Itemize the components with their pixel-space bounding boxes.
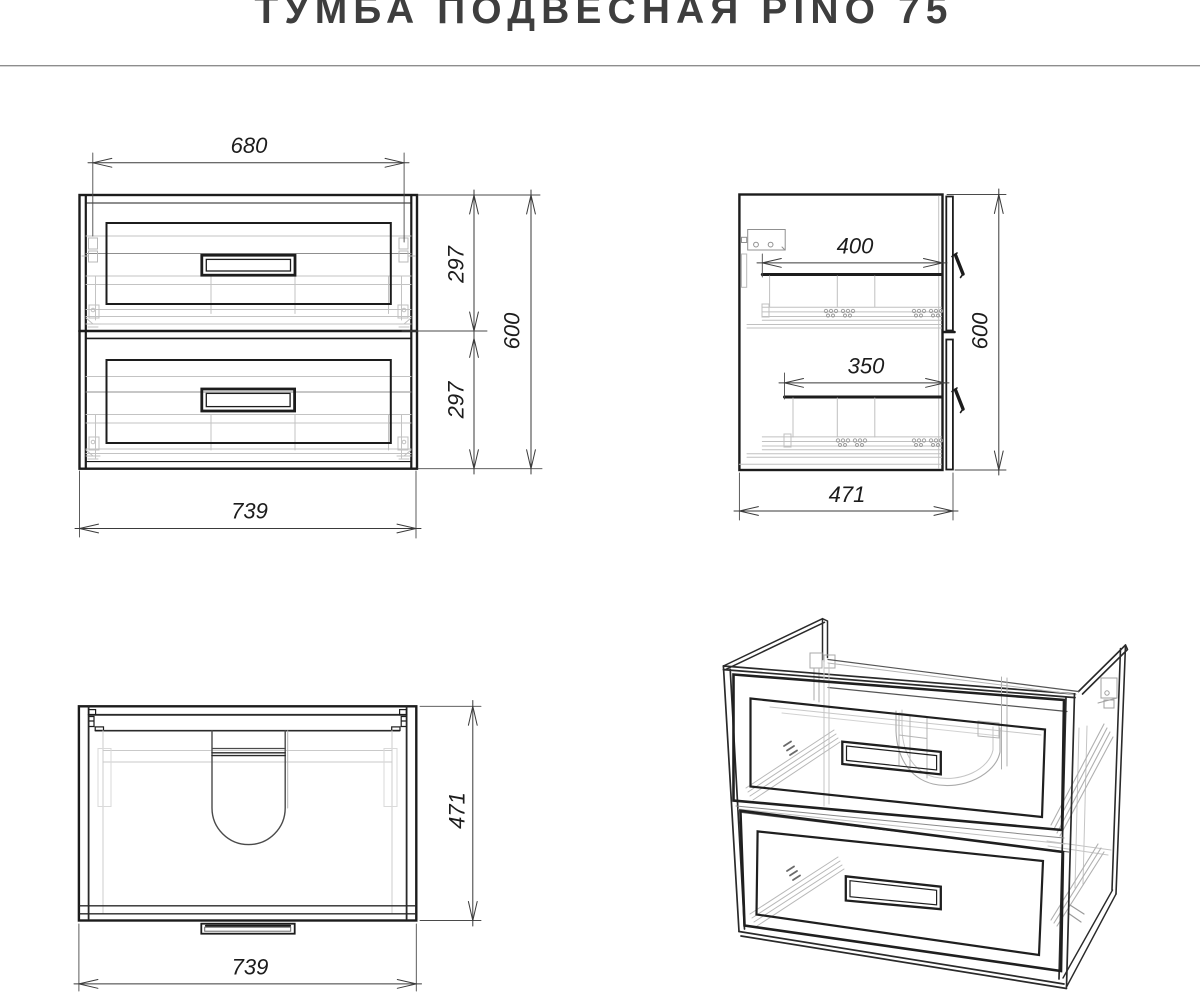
- svg-text:680: 680: [231, 133, 268, 158]
- svg-text:600: 600: [968, 312, 993, 349]
- svg-text:600: 600: [500, 312, 525, 349]
- svg-text:297: 297: [444, 381, 469, 419]
- svg-text:471: 471: [445, 792, 470, 829]
- svg-text:739: 739: [232, 955, 269, 980]
- svg-text:739: 739: [231, 499, 268, 524]
- svg-text:350: 350: [848, 354, 885, 379]
- svg-text:400: 400: [837, 234, 874, 259]
- svg-text:471: 471: [829, 482, 866, 507]
- svg-text:297: 297: [444, 245, 469, 283]
